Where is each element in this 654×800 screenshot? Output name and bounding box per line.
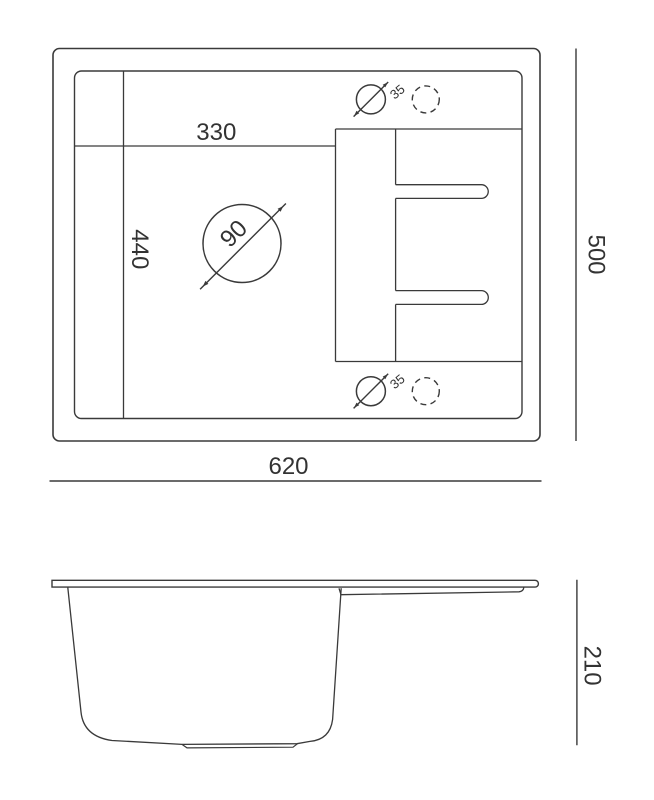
svg-text:620: 620 <box>268 453 308 480</box>
svg-text:440: 440 <box>126 229 153 269</box>
svg-text:210: 210 <box>578 646 605 686</box>
svg-text:500: 500 <box>583 234 610 274</box>
svg-text:90: 90 <box>215 215 253 253</box>
svg-text:35: 35 <box>387 371 408 392</box>
svg-text:330: 330 <box>196 119 236 146</box>
svg-text:35: 35 <box>387 81 408 102</box>
